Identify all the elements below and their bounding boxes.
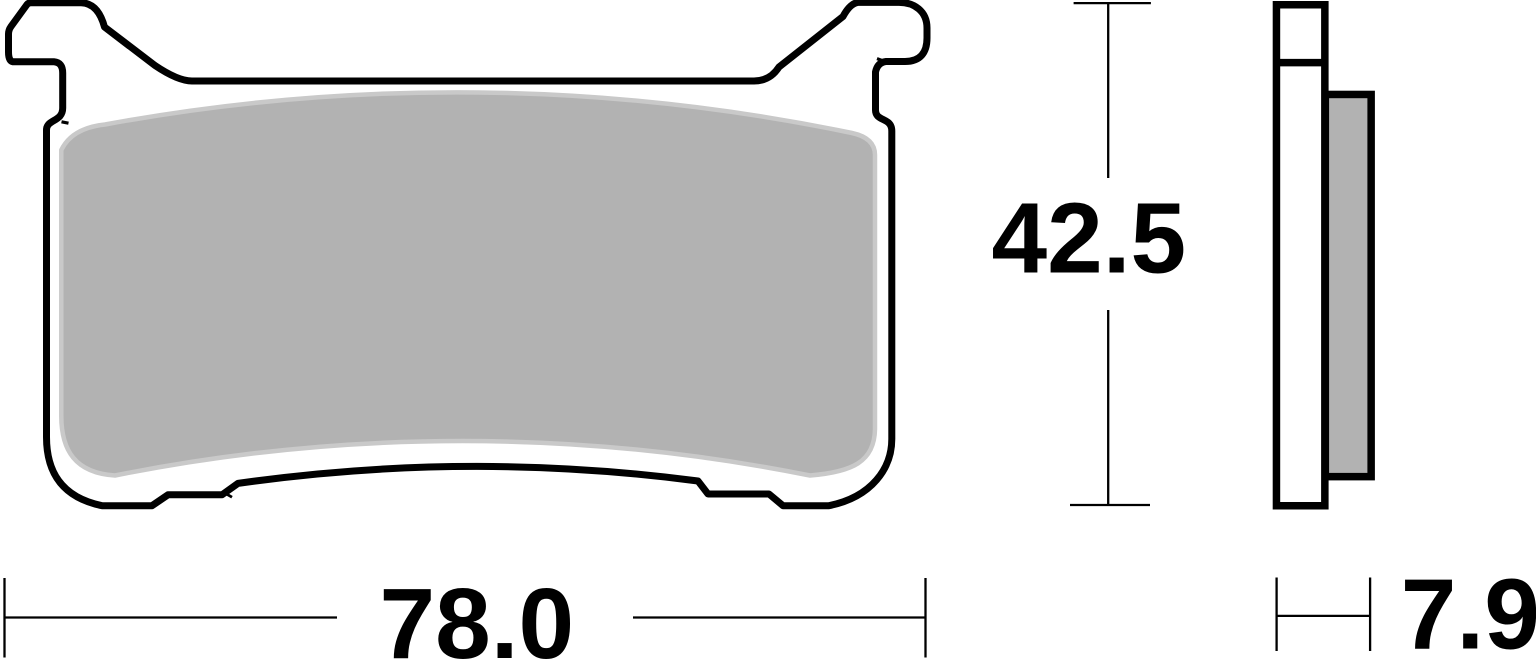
- svg-text:78.0: 78.0: [380, 568, 575, 660]
- svg-text:7.9: 7.9: [1401, 559, 1536, 660]
- svg-text:42.5: 42.5: [992, 183, 1187, 295]
